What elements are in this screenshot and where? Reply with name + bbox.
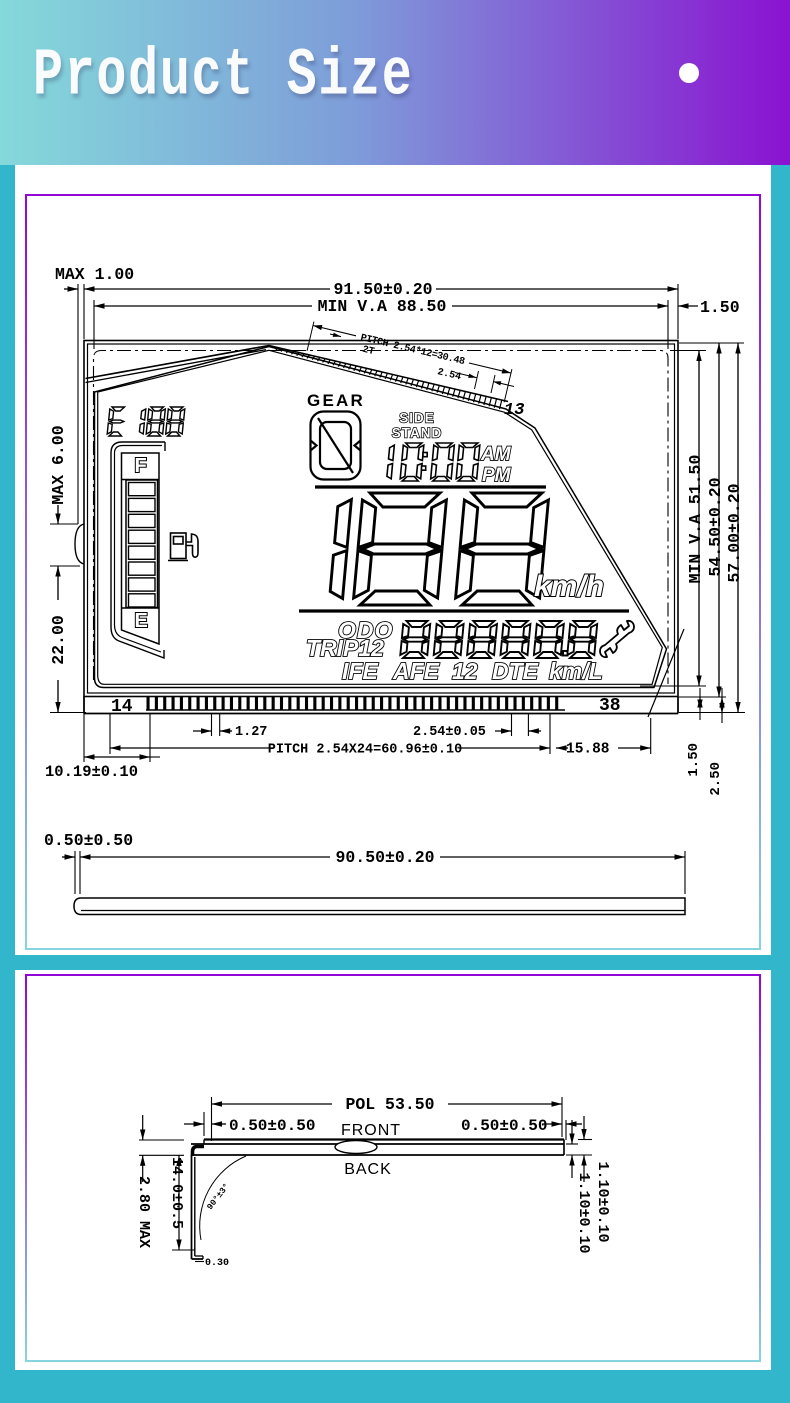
svg-text:MIN V.A 88.50: MIN V.A 88.50 [318, 297, 447, 316]
svg-text:1.10±0.10: 1.10±0.10 [594, 1161, 611, 1242]
svg-text:1.27: 1.27 [235, 725, 267, 740]
svg-text:AM: AM [480, 444, 512, 465]
svg-text:BACK: BACK [344, 1161, 392, 1178]
svg-text:2.54: 2.54 [436, 367, 462, 383]
svg-text:54.50±0.20: 54.50±0.20 [706, 477, 725, 576]
svg-text:km/L: km/L [549, 658, 603, 684]
svg-text:SIDE: SIDE [399, 411, 435, 426]
svg-text:1.50: 1.50 [686, 743, 702, 777]
svg-text:FRONT: FRONT [341, 1122, 401, 1139]
svg-text:2.80 MAX: 2.80 MAX [135, 1176, 152, 1248]
svg-text:57.00±0.20: 57.00±0.20 [725, 483, 744, 582]
svg-text:2.54±0.05: 2.54±0.05 [413, 725, 486, 740]
svg-text:AFE: AFE [392, 658, 440, 684]
svg-text:0.50±0.50: 0.50±0.50 [229, 1117, 315, 1135]
svg-text:1.10±0.10: 1.10±0.10 [575, 1172, 592, 1253]
svg-text:MIN V.A 51.50: MIN V.A 51.50 [686, 455, 705, 584]
svg-text:15.88: 15.88 [566, 742, 610, 758]
svg-text:13: 13 [504, 401, 524, 420]
svg-text:IFE: IFE [342, 658, 378, 684]
svg-text:PM: PM [482, 465, 512, 486]
svg-text:0.30: 0.30 [205, 1258, 229, 1269]
svg-text:90°±3°: 90°±3° [205, 1182, 232, 1212]
svg-text:12: 12 [452, 658, 478, 684]
svg-text:F: F [135, 455, 147, 477]
svg-text:E: E [135, 610, 148, 632]
svg-text:STAND: STAND [392, 426, 443, 441]
svg-text:PITCH 2.54X24=60.96±0.10: PITCH 2.54X24=60.96±0.10 [268, 743, 462, 758]
svg-text:38: 38 [599, 696, 621, 716]
svg-text:22.00: 22.00 [49, 615, 68, 665]
svg-text:0.50±0.50: 0.50±0.50 [44, 831, 133, 850]
svg-text:POL 53.50: POL 53.50 [345, 1095, 434, 1114]
svg-text:14: 14 [111, 697, 133, 717]
svg-text:90.50±0.20: 90.50±0.20 [335, 848, 434, 867]
svg-text:MAX 1.00: MAX 1.00 [55, 265, 134, 284]
svg-text:10.19±0.10: 10.19±0.10 [45, 763, 138, 781]
svg-text:MAX 6.00: MAX 6.00 [49, 425, 68, 504]
svg-text:0.50±0.50: 0.50±0.50 [461, 1117, 547, 1135]
svg-text:14.0±0.5: 14.0±0.5 [168, 1157, 185, 1229]
svg-text:GEAR: GEAR [307, 391, 365, 410]
svg-text:1.50: 1.50 [700, 298, 740, 317]
svg-text:2T: 2T [361, 345, 375, 358]
svg-text:2.50: 2.50 [708, 762, 724, 796]
svg-text:DTE: DTE [492, 658, 539, 684]
svg-text:km/h: km/h [534, 570, 604, 603]
